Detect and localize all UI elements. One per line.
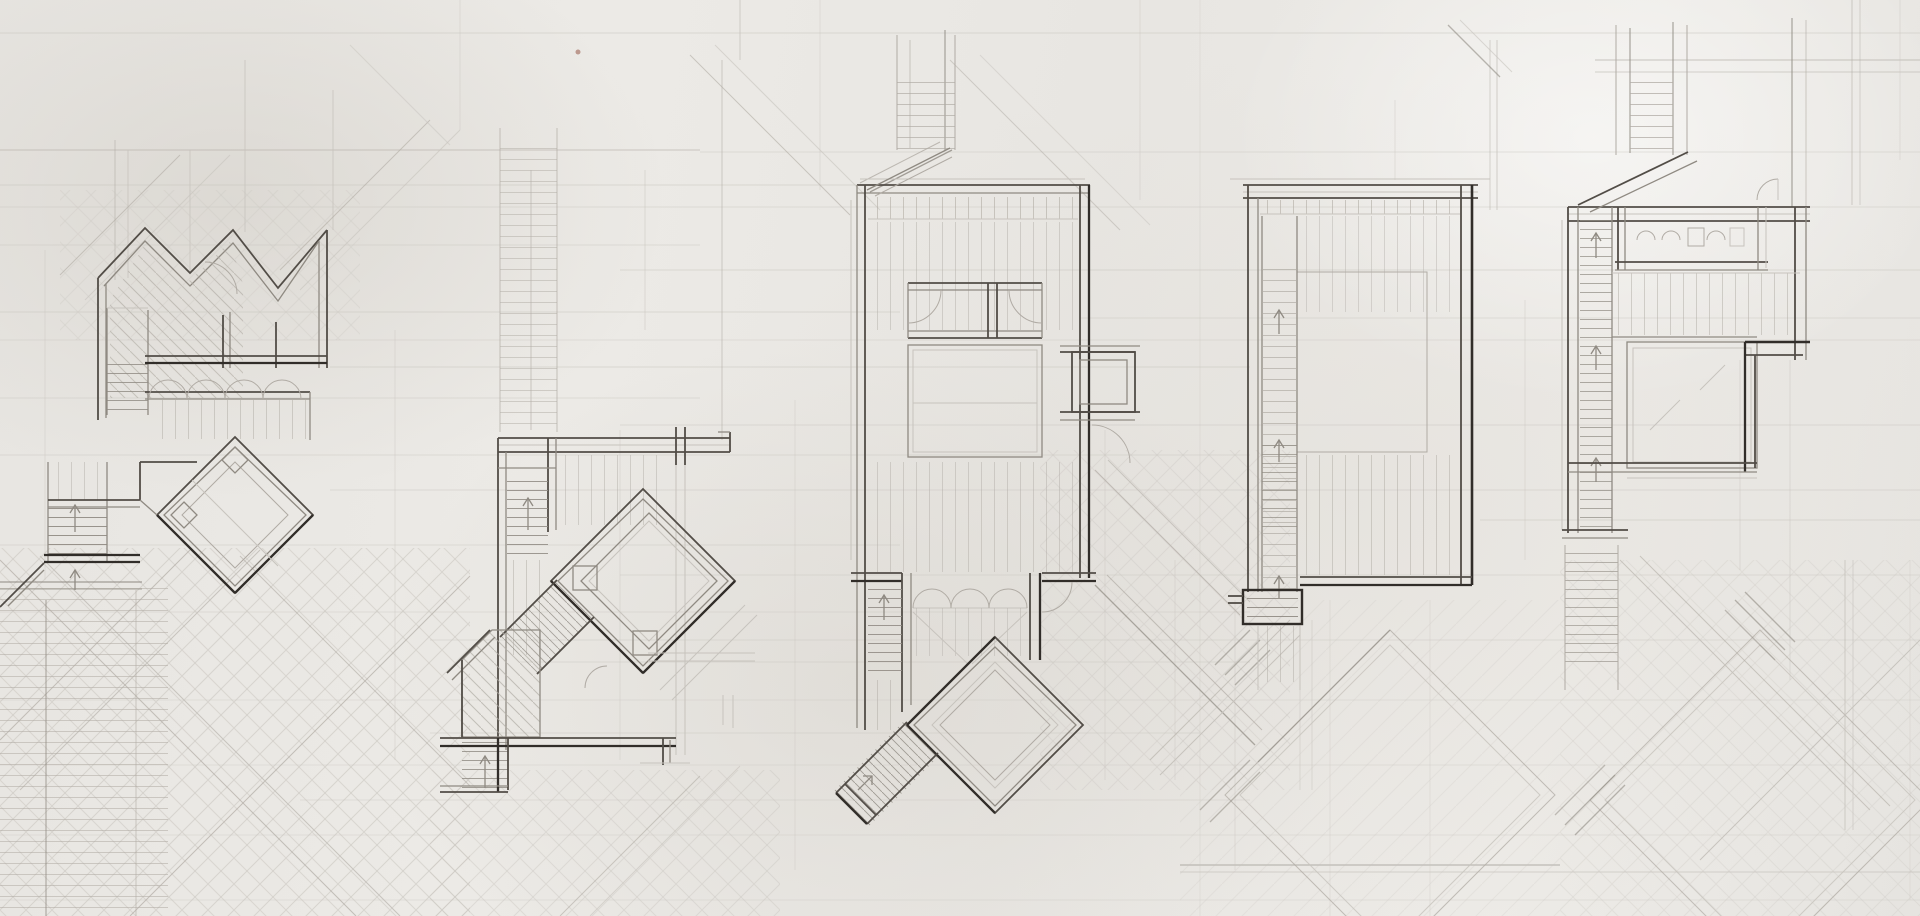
column-marker	[633, 631, 657, 655]
stair-run	[107, 360, 148, 415]
stair-run	[857, 583, 902, 730]
bathroom-fixtures	[1637, 228, 1744, 246]
drawing-sheet	[0, 0, 1920, 916]
column-marker	[573, 566, 597, 590]
ladder-stair-column	[1580, 207, 1612, 533]
left-edge-stair-band	[0, 582, 168, 916]
architectural-sketch	[0, 0, 1920, 916]
top-bar-wall	[498, 432, 730, 452]
grid-annex	[1060, 346, 1140, 463]
corner-marker	[222, 447, 248, 473]
diagonal-corridor	[1578, 152, 1697, 212]
bathroom	[1615, 179, 1778, 270]
plank-zone	[558, 455, 668, 525]
corner-marker	[171, 502, 197, 528]
door-arc	[1757, 179, 1778, 200]
bottom-center-diamond-guides	[1180, 600, 1560, 916]
bed	[908, 345, 1042, 457]
floor-plan-2	[440, 427, 757, 792]
stair-ladder-top-center	[860, 30, 955, 192]
center-stub-wall	[676, 427, 685, 755]
plank-band	[1612, 273, 1800, 337]
ladder-stair-column	[1262, 216, 1297, 598]
plank-deck	[868, 197, 1078, 572]
striped-bed-square	[581, 513, 717, 649]
pencil-speck	[576, 50, 581, 55]
stair-ladder-top-left	[500, 50, 581, 433]
construction-echoes	[648, 605, 757, 728]
door-arc	[585, 666, 607, 688]
